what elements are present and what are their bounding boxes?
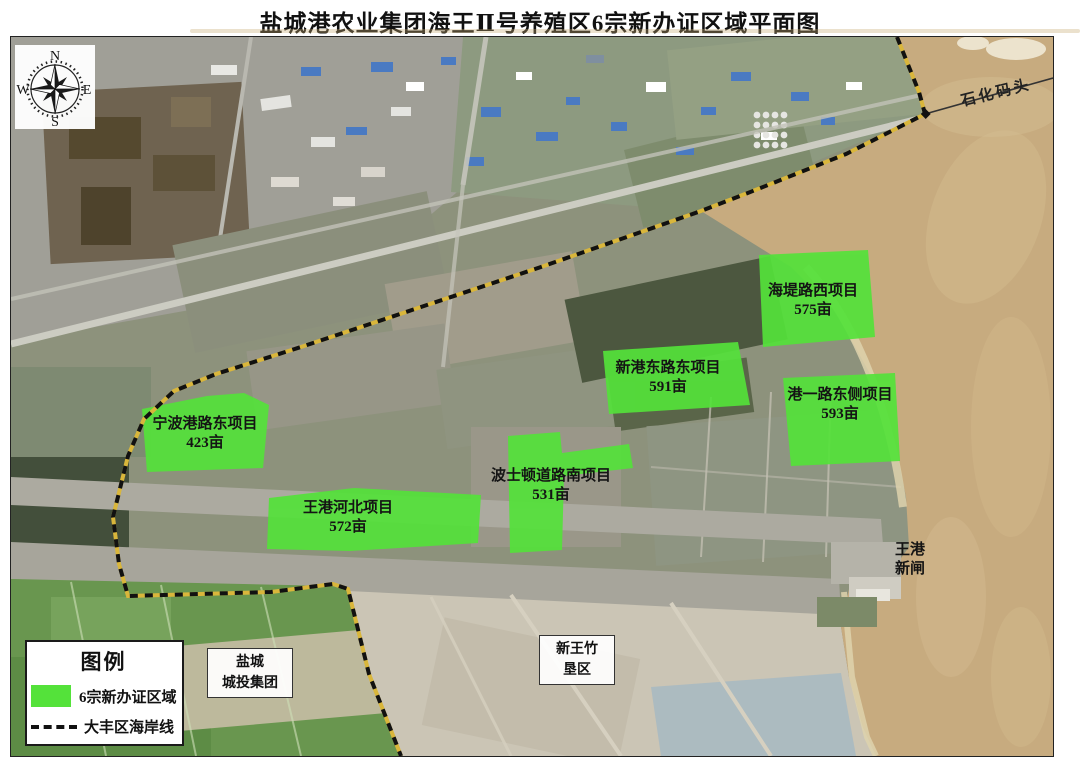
compass-north-label: N <box>50 49 60 64</box>
legend-title: 图例 <box>31 646 176 676</box>
plan-map-page: 盐城港农业集团海王Ⅱ号养殖区6宗新办证区域平面图 <box>0 0 1080 763</box>
compass-rose-graphic: N S W E <box>15 45 95 129</box>
xinwangzhu-kenqu-label-box: 新王竹 垦区 <box>539 635 615 685</box>
parcel-label-gangyi-road-east: 港一路东侧项目 593亩 <box>787 386 892 424</box>
compass-south-label: S <box>51 115 59 129</box>
legend: 图例 6宗新办证区域 大丰区海岸线 <box>25 640 184 746</box>
parcel-label-wanggang-river-north: 王港河北项目 572亩 <box>303 499 393 537</box>
legend-item-coastline: 大丰区海岸线 <box>31 716 176 737</box>
compass-rose: N S W E <box>15 45 95 129</box>
parcel-label-boston-road-south: 波士顿道路南项目 531亩 <box>491 467 611 505</box>
parcel-label-ningbogang-road-east: 宁波港路东项目 423亩 <box>152 415 257 453</box>
sluice-label: 王港 新闸 <box>895 541 925 579</box>
compass-west-label: W <box>16 83 30 98</box>
yancheng-chengtou-label-box: 盐城 城投集团 <box>207 648 293 698</box>
legend-dashed-line-swatch <box>31 725 77 729</box>
compass-east-label: E <box>83 83 92 98</box>
parcel-label-haidi-road-west: 海堤路西项目 575亩 <box>768 282 858 320</box>
parcel-label-xingang-east-road-east: 新港东路东项目 591亩 <box>615 359 720 397</box>
scan-smudge <box>190 29 1080 33</box>
satellite-map: N S W E 海堤路西项目 575亩 新港东路东项目 591亩 港一路东侧项目… <box>10 36 1054 757</box>
legend-green-swatch <box>31 685 71 707</box>
legend-item-green-area: 6宗新办证区域 <box>31 685 176 707</box>
